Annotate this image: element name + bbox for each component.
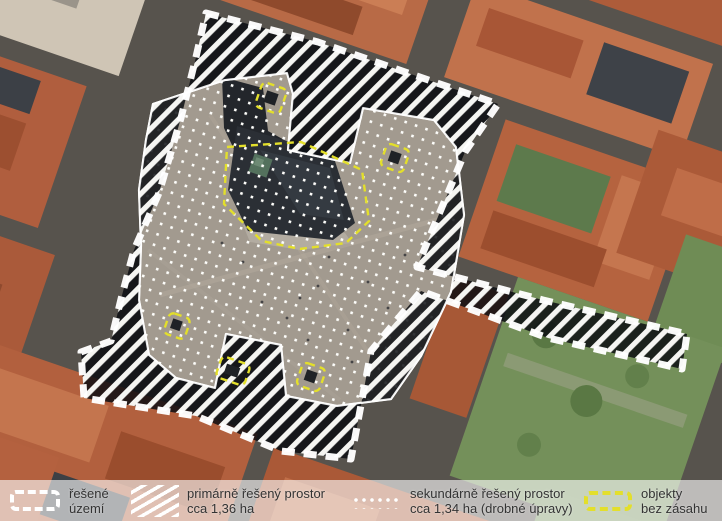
legend-item-label: sekundárně řešený prostor cca 1,34 ha (d… [410,486,573,516]
aerial-map [0,0,722,521]
legend-item-resene-uzemi: řešené území [10,480,109,521]
legend-item-sekundarne-reseny-prostor: sekundárně řešený prostor cca 1,34 ha (d… [350,480,573,521]
white-diagonal-hatch-icon [131,485,179,517]
legend-item-label: primárně řešený prostor cca 1,36 ha [187,486,325,516]
yellow-dashed-outline-icon [584,491,632,511]
white-dashed-outline-icon [10,490,60,511]
figure-aerial-plan: řešené území primárně řešený prostor cca… [0,0,722,521]
white-dot-grid-icon [350,492,402,509]
legend-item-label: řešené území [69,486,109,516]
legend-item-label: objekty bez zásahu [641,486,708,516]
map-legend: řešené území primárně řešený prostor cca… [0,480,722,521]
legend-item-objekty-bez-zasahu: objekty bez zásahu [584,480,708,521]
legend-item-primarne-reseny-prostor: primárně řešený prostor cca 1,36 ha [131,480,325,521]
